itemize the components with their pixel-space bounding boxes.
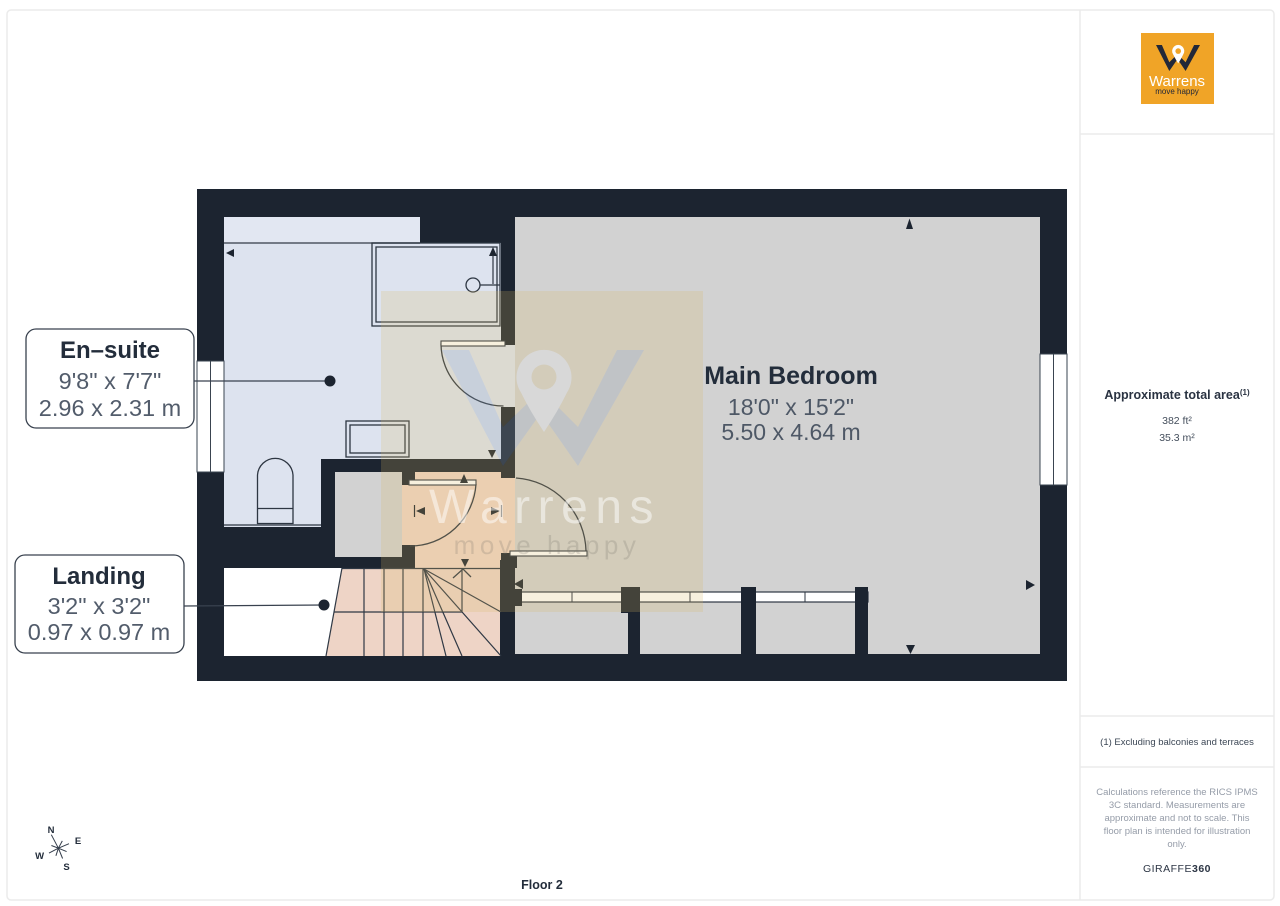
svg-text:Warrens: Warrens (429, 481, 661, 534)
svg-text:GIRAFFE360: GIRAFFE360 (1143, 863, 1211, 875)
svg-text:3C standard. Measurements are: 3C standard. Measurements are (1109, 800, 1245, 811)
svg-text:W: W (35, 851, 44, 862)
svg-text:(1) Excluding balconies and te: (1) Excluding balconies and terraces (1100, 737, 1254, 748)
svg-text:approximate and not to scale.: approximate and not to scale. This (1104, 813, 1249, 824)
svg-text:0.97 x 0.97 m: 0.97 x 0.97 m (28, 619, 170, 645)
svg-text:S: S (63, 862, 69, 873)
svg-text:floor plan is intended for ill: floor plan is intended for illustration (1104, 826, 1251, 837)
svg-text:Calculations reference the RIC: Calculations reference the RICS IPMS (1096, 787, 1258, 798)
svg-text:N: N (48, 825, 55, 836)
svg-text:En–suite: En–suite (60, 337, 160, 364)
svg-text:18'0" x 15'2": 18'0" x 15'2" (728, 394, 854, 420)
svg-text:Main Bedroom: Main Bedroom (704, 362, 878, 390)
svg-text:only.: only. (1167, 839, 1186, 850)
svg-text:move happy: move happy (1155, 87, 1199, 96)
svg-text:9'8" x 7'7": 9'8" x 7'7" (59, 368, 162, 394)
svg-text:Floor 2: Floor 2 (521, 878, 563, 892)
svg-text:5.50 x 4.64 m: 5.50 x 4.64 m (721, 419, 860, 445)
svg-text:Approximate total area(1): Approximate total area(1) (1104, 388, 1250, 402)
svg-text:E: E (75, 836, 81, 847)
svg-text:382 ft²: 382 ft² (1162, 415, 1192, 427)
svg-text:Landing: Landing (52, 563, 145, 590)
svg-text:35.3 m²: 35.3 m² (1159, 432, 1195, 444)
svg-text:move happy: move happy (454, 530, 641, 560)
svg-text:2.96 x 2.31 m: 2.96 x 2.31 m (39, 395, 181, 421)
svg-text:3'2" x 3'2": 3'2" x 3'2" (48, 593, 151, 619)
